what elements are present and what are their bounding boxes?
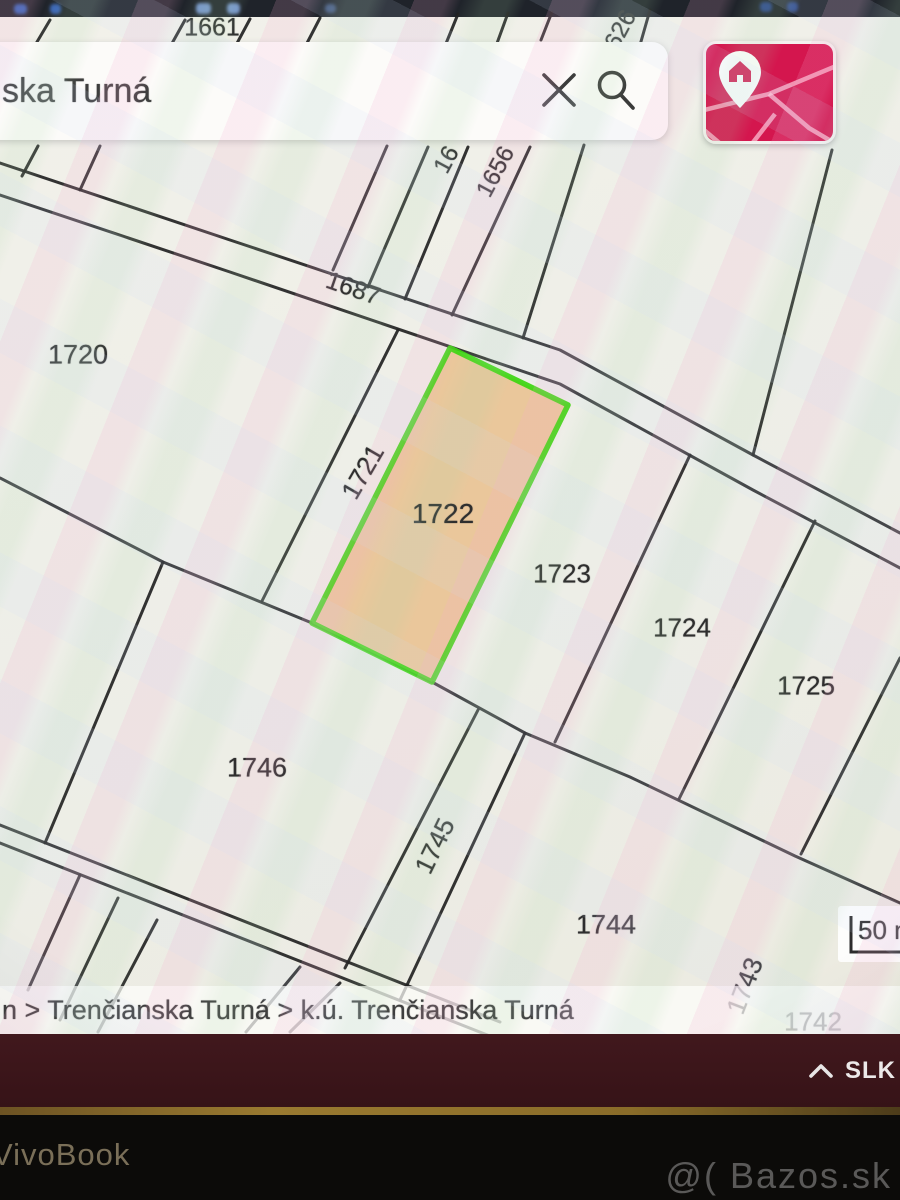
map-style-button[interactable] (703, 41, 836, 144)
map-boundary (45, 562, 163, 843)
breadcrumb[interactable]: n > Trenčianska Turná > k.ú. Trenčianska… (2, 995, 574, 1026)
photo-of-laptop-screen: 1661626161656168717201721172217231724172… (0, 0, 900, 1200)
map-boundary (541, 12, 552, 40)
map-boundary (679, 521, 815, 799)
map-boundary (753, 150, 832, 455)
map-boundary (345, 710, 478, 968)
chevron-up-icon[interactable] (808, 1062, 834, 1080)
map-boundary (555, 455, 690, 742)
map-boundary (400, 733, 525, 1000)
clear-search-button[interactable] (532, 63, 588, 119)
parcel-1722-highlight[interactable] (312, 348, 568, 682)
language-indicator[interactable]: SLK (845, 1057, 896, 1085)
search-button[interactable] (588, 63, 644, 119)
brand-logo: VivoBook (0, 1137, 130, 1173)
screen: 1661626161656168717201721172217231724172… (0, 0, 900, 1114)
search-input[interactable]: ska Turná (2, 72, 532, 111)
map-scale: 50 m (838, 906, 900, 962)
laptop-hinge (0, 1107, 900, 1115)
map-boundary (333, 146, 387, 270)
scale-label: 50 m (858, 915, 900, 946)
cadastral-map[interactable] (0, 0, 900, 1114)
bazos-watermark: @( Bazos.sk (665, 1155, 892, 1197)
system-bar: SLK (0, 1034, 900, 1107)
laptop-bezel: VivoBook @( Bazos.sk (0, 1115, 900, 1200)
map-boundary (801, 658, 900, 854)
map-with-home-pin-icon (706, 44, 833, 141)
map-boundary (405, 147, 468, 299)
map-boundary (640, 10, 650, 45)
map-boundary (452, 147, 530, 315)
magnifier-icon (593, 68, 639, 114)
map-boundary (80, 146, 100, 190)
search-bar[interactable]: ska Turná (0, 42, 668, 140)
x-icon (540, 71, 580, 111)
map-boundary (523, 145, 584, 338)
breadcrumb-bar: n > Trenčianska Turná > k.ú. Trenčianska… (0, 986, 900, 1034)
map-boundary (28, 875, 80, 990)
